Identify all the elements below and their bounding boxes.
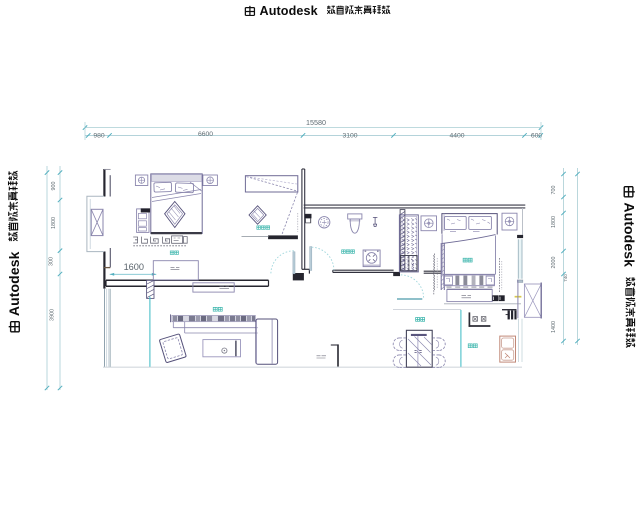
svg-text:6600: 6600 [198,131,213,138]
svg-text:900: 900 [51,182,57,191]
svg-text:Autodesk: Autodesk [622,202,638,267]
svg-text:2000: 2000 [551,257,557,269]
svg-text:3900: 3900 [50,309,56,321]
svg-text:740: 740 [563,274,568,282]
svg-text:15580: 15580 [306,118,326,127]
svg-text:1800: 1800 [51,217,57,229]
svg-text:1600: 1600 [124,262,144,272]
svg-text:1400: 1400 [551,321,557,333]
svg-text:980: 980 [93,133,105,140]
svg-text:300: 300 [49,257,55,266]
svg-text:Autodesk: Autodesk [6,251,22,316]
svg-text:3100: 3100 [342,132,357,139]
svg-text:Autodesk: Autodesk [260,4,319,18]
svg-text:4400: 4400 [449,132,464,139]
svg-text:1800: 1800 [551,216,557,228]
svg-text:700: 700 [551,186,557,195]
